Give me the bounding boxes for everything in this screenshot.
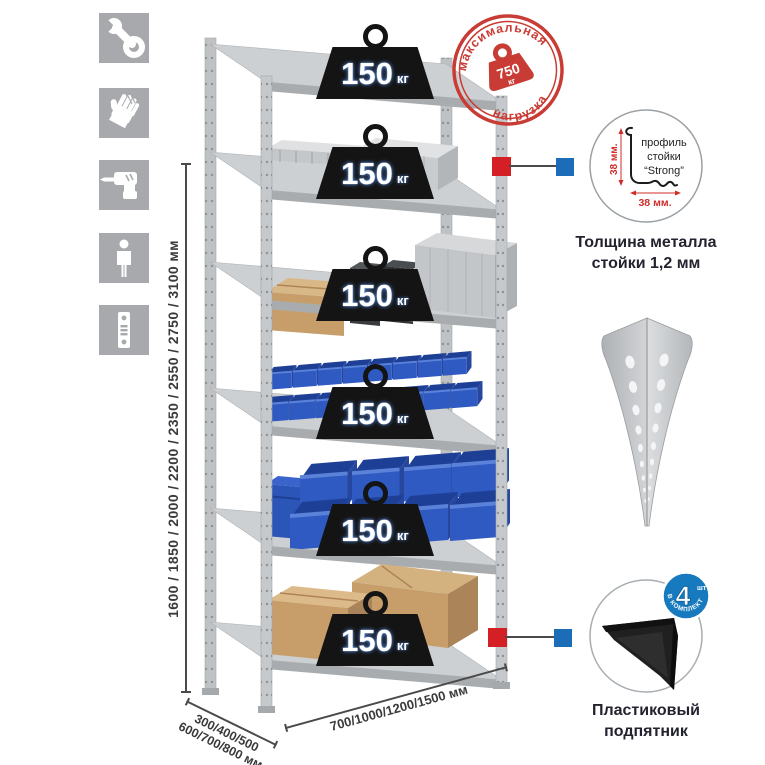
callout-line-foot (505, 636, 555, 638)
weight-handle-icon (363, 246, 388, 271)
foot-caption-line1: Пластиковый (556, 700, 736, 721)
weight-handle-icon (363, 481, 388, 506)
foot-caption-line2: подпятник (556, 721, 736, 742)
quantity-badge: 4 шт В КОМПЛЕКТЕ (660, 570, 712, 622)
shelf-load-badge-2: 150кг (316, 124, 434, 199)
callout-marker-foot-blue (554, 629, 572, 647)
weight-handle-icon (363, 24, 388, 49)
profile-caption-line2: стойки 1,2 мм (556, 253, 736, 274)
profile-label-line3: “Strong” (644, 165, 684, 177)
weight-handle-icon (363, 364, 388, 389)
weight-handle-icon (363, 591, 388, 616)
profile-dim-horizontal: 38 мм. (638, 197, 671, 209)
corner-post-image (592, 310, 702, 532)
shelf-load-badge-6: 150кг (316, 591, 434, 666)
gloves-icon (99, 88, 149, 138)
wrench-icon (99, 13, 149, 63)
depth-dimension-label-line2: 600/700/800 мм (164, 713, 278, 765)
load-value: 150 (341, 280, 393, 311)
profile-caption: Толщина металла стойки 1,2 мм (556, 232, 736, 274)
load-value: 150 (341, 515, 393, 546)
profile-label-line1: профиль (641, 137, 687, 149)
product-infographic: 1600 / 1850 / 2000 / 2200 / 2350 / 2550 … (0, 0, 765, 765)
callout-line-profile (509, 165, 557, 167)
load-value: 150 (341, 398, 393, 429)
person-icon (99, 233, 149, 283)
load-unit: кг (397, 411, 409, 426)
profile-label-line2: стойки (647, 151, 681, 163)
weight-handle-icon (363, 124, 388, 149)
load-value: 150 (341, 625, 393, 656)
load-value: 150 (341, 158, 393, 189)
load-unit: кг (397, 528, 409, 543)
shelf-load-badge-3: 150кг (316, 246, 434, 321)
load-unit: кг (397, 171, 409, 186)
load-unit: кг (397, 638, 409, 653)
profile-caption-line1: Толщина металла (556, 232, 736, 253)
profile-dim-vertical: 38 мм. (609, 143, 620, 175)
load-value: 150 (341, 58, 393, 89)
load-unit: кг (397, 293, 409, 308)
shelf-load-badge-1: 150кг (316, 24, 434, 99)
foot-caption: Пластиковый подпятник (556, 700, 736, 742)
shelf-load-badge-5: 150кг (316, 481, 434, 556)
callout-marker-profile-blue (556, 158, 574, 176)
shelf-load-badge-4: 150кг (316, 364, 434, 439)
quantity-unit: шт (697, 585, 707, 592)
rack-post-icon (99, 305, 149, 355)
drill-icon (99, 160, 149, 210)
height-dimension-label: 1600 / 1850 / 2000 / 2200 / 2350 / 2550 … (165, 199, 181, 659)
load-unit: кг (397, 71, 409, 86)
profile-detail-circle: 38 мм. 38 мм. профиль стойки “Strong” (588, 108, 704, 224)
